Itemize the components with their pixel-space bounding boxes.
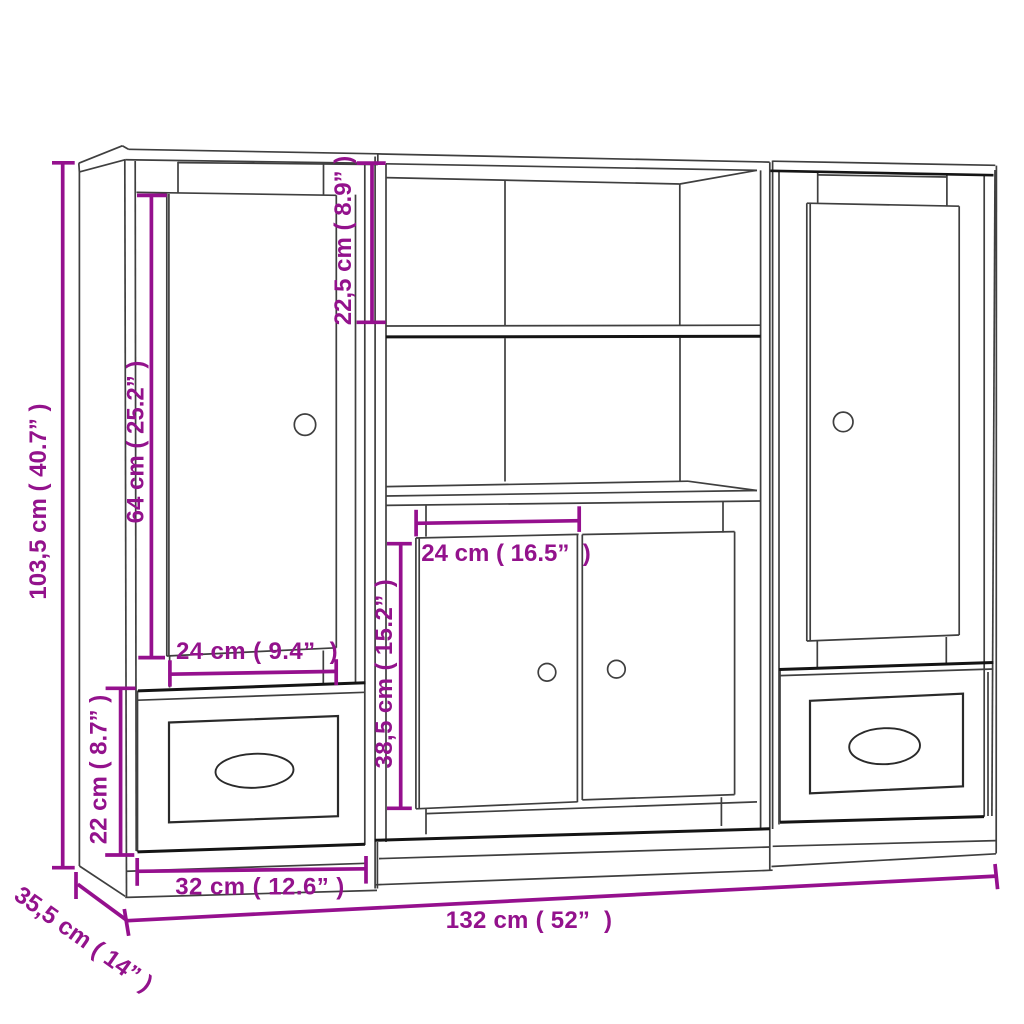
svg-text:24 cm ( 9.4” ): 24 cm ( 9.4” ): [176, 638, 338, 665]
svg-text:32 cm ( 12.6” ): 32 cm ( 12.6” ): [175, 874, 345, 901]
svg-text:103,5 cm ( 40.7” ): 103,5 cm ( 40.7” ): [25, 403, 52, 599]
svg-text:132 cm ( 52” ): 132 cm ( 52” ): [446, 907, 613, 934]
svg-text:24 cm ( 16.5” ): 24 cm ( 16.5” ): [421, 540, 590, 567]
svg-text:38,5 cm ( 15.2” ): 38,5 cm ( 15.2” ): [371, 579, 398, 769]
svg-text:22 cm ( 8.7” ): 22 cm ( 8.7” ): [86, 695, 113, 844]
svg-text:22,5 cm ( 8.9” ): 22,5 cm ( 8.9” ): [330, 156, 357, 325]
svg-text:64 cm ( 25.2” ): 64 cm ( 25.2” ): [123, 361, 150, 524]
